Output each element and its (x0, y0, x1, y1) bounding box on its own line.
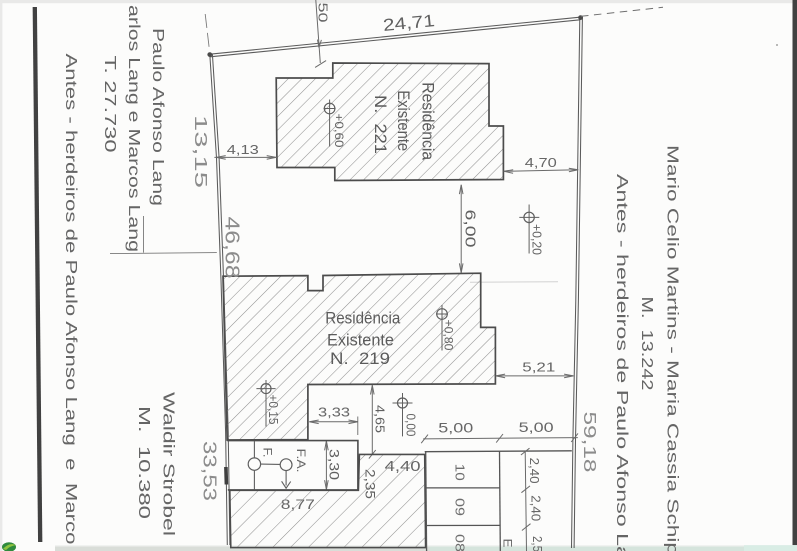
svg-text:Paulo Afonso Lang: Paulo Afonso Lang (149, 28, 166, 206)
svg-text:33,53: 33,53 (200, 441, 220, 501)
svg-text:Mario Celio Martins - Maria Ca: Mario Celio Martins - Maria Cassia Schip (663, 145, 680, 551)
svg-text:+0,60: +0,60 (332, 114, 346, 148)
svg-text:N. 219: N. 219 (330, 350, 390, 368)
svg-text:09: 09 (453, 498, 468, 516)
svg-text:5,00: 5,00 (519, 420, 554, 435)
svg-text:M. 13.242: M. 13.242 (638, 297, 655, 391)
svg-text:E: E (501, 539, 515, 548)
svg-text:0,00: 0,00 (404, 414, 419, 437)
svg-text:6,00: 6,00 (462, 210, 478, 248)
svg-text:F.A.: F.A. (294, 449, 306, 473)
svg-text:46,68: 46,68 (220, 217, 242, 279)
svg-text:5,00: 5,00 (438, 421, 473, 436)
svg-text:Residência: Residência (419, 82, 437, 161)
svg-text:Existente: Existente (394, 90, 412, 151)
svg-text:4,65: 4,65 (372, 405, 387, 433)
svg-text:4,70: 4,70 (525, 155, 557, 170)
svg-text:M. 10.380: M. 10.380 (135, 406, 152, 519)
svg-text:N. 221: N. 221 (371, 95, 389, 154)
svg-text:2,40: 2,40 (527, 458, 541, 484)
svg-text:T. 27.730: T. 27.730 (101, 56, 118, 153)
svg-text:59,18: 59,18 (580, 412, 600, 473)
svg-text:50: 50 (316, 3, 330, 23)
svg-text:Antes - herdeiros de Paulo Afo: Antes - herdeiros de Paulo Afonso Lang e… (62, 54, 79, 545)
svg-text:Residência: Residência (325, 310, 401, 328)
svg-text:arlos Lang e Marcos Lang: arlos Lang e Marcos Lang (125, 5, 142, 252)
svg-text:Waldir Strobel: Waldir Strobel (159, 392, 176, 536)
svg-text:+0,20: +0,20 (529, 224, 544, 255)
svg-text:4,13: 4,13 (227, 142, 259, 157)
svg-text:2,40: 2,40 (528, 495, 542, 521)
svg-text:+0,80: +0,80 (442, 320, 456, 351)
svg-text:5,21: 5,21 (522, 360, 555, 375)
svg-text:3,30: 3,30 (326, 449, 341, 480)
svg-text:08: 08 (453, 534, 468, 551)
svg-text:F.: F. (260, 448, 272, 458)
svg-text:2,5: 2,5 (530, 536, 544, 551)
svg-text:3,33: 3,33 (318, 405, 350, 420)
svg-text:13,15: 13,15 (191, 115, 211, 188)
svg-text:Existente: Existente (327, 332, 394, 350)
svg-text:+0,15: +0,15 (266, 395, 281, 425)
svg-text:10: 10 (453, 464, 468, 481)
svg-text:Antes - herdeiros de Paulo Afo: Antes - herdeiros de Paulo Afonso La (613, 174, 630, 551)
